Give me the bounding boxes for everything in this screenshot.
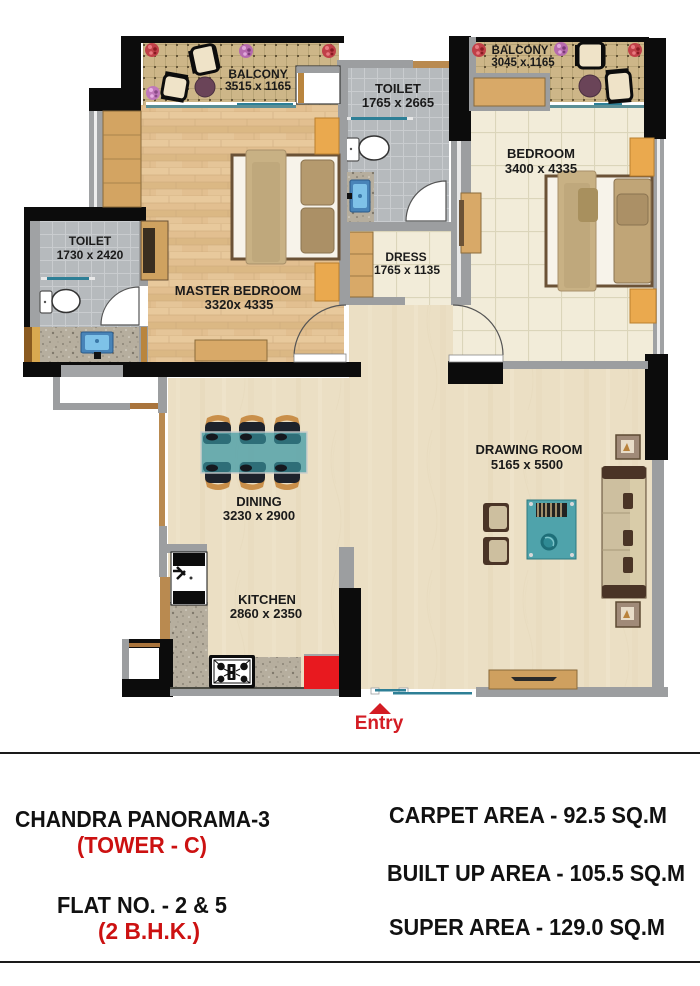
svg-text:SUPER AREA - 129.0 SQ.M: SUPER AREA - 129.0 SQ.M	[389, 914, 665, 940]
svg-text:3230 x 2900: 3230 x 2900	[223, 508, 295, 523]
svg-text:MASTER BEDROOM: MASTER BEDROOM	[175, 283, 301, 298]
svg-text:5165 x 5500: 5165 x 5500	[491, 457, 563, 472]
svg-text:TOILET: TOILET	[375, 81, 421, 96]
svg-text:TOILET: TOILET	[69, 234, 112, 248]
svg-text:CHANDRA PANORAMA-3: CHANDRA PANORAMA-3	[15, 806, 270, 832]
svg-text:(TOWER - C): (TOWER - C)	[77, 832, 207, 858]
svg-text:BALCONY: BALCONY	[492, 45, 549, 57]
svg-text:DRAWING ROOM: DRAWING ROOM	[476, 442, 583, 457]
svg-text:BEDROOM: BEDROOM	[507, 146, 575, 161]
svg-text:BUILT UP AREA - 105.5 SQ.M: BUILT UP AREA - 105.5 SQ.M	[387, 860, 685, 886]
svg-text:2860 x 2350: 2860 x 2350	[230, 606, 302, 621]
svg-text:(2 B.H.K.): (2 B.H.K.)	[98, 918, 200, 944]
svg-text:3045 x.1165: 3045 x.1165	[491, 57, 555, 69]
svg-text:1730 x 2420: 1730 x 2420	[57, 248, 124, 262]
svg-text:1765 x 1135: 1765 x 1135	[374, 263, 440, 277]
svg-text:1765 x 2665: 1765 x 2665	[362, 95, 434, 110]
svg-text:CARPET AREA - 92.5 SQ.M: CARPET AREA - 92.5 SQ.M	[389, 802, 667, 828]
svg-text:3400 x 4335: 3400 x 4335	[505, 161, 577, 176]
svg-text:3320x 4335: 3320x 4335	[205, 297, 274, 312]
svg-text:KITCHEN: KITCHEN	[238, 592, 296, 607]
svg-text:FLAT NO. - 2 & 5: FLAT NO. - 2 & 5	[57, 892, 227, 918]
svg-text:3515 x 1165: 3515 x 1165	[225, 79, 291, 93]
svg-text:DRESS: DRESS	[385, 250, 426, 264]
svg-text:Entry: Entry	[355, 713, 404, 734]
svg-text:DINING: DINING	[236, 494, 282, 509]
